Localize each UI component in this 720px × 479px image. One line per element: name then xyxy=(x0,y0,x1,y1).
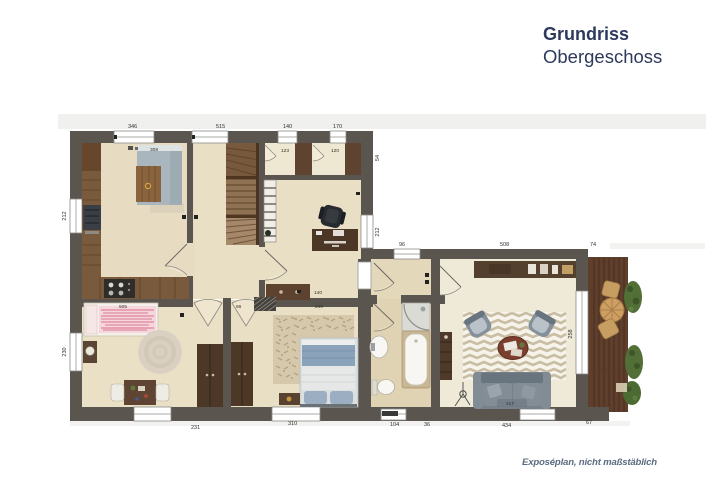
svg-text:308: 308 xyxy=(150,147,158,153)
svg-text:434: 434 xyxy=(502,423,511,429)
svg-text:212: 212 xyxy=(62,211,68,220)
svg-text:240: 240 xyxy=(315,304,323,310)
svg-text:346: 346 xyxy=(128,124,137,130)
svg-text:508: 508 xyxy=(500,242,509,248)
svg-text:258: 258 xyxy=(568,329,574,338)
svg-text:67: 67 xyxy=(586,420,592,426)
svg-text:66: 66 xyxy=(236,304,242,310)
svg-text:74: 74 xyxy=(590,242,596,248)
svg-text:505: 505 xyxy=(119,304,127,310)
svg-text:96: 96 xyxy=(399,242,405,248)
svg-text:140: 140 xyxy=(314,290,322,296)
svg-text:231: 231 xyxy=(191,425,200,431)
svg-text:54: 54 xyxy=(375,155,381,161)
svg-text:515: 515 xyxy=(216,124,225,130)
svg-text:170: 170 xyxy=(333,124,342,130)
svg-text:417: 417 xyxy=(506,401,514,407)
svg-text:230: 230 xyxy=(62,347,68,356)
svg-text:212: 212 xyxy=(375,227,381,236)
svg-text:310: 310 xyxy=(288,421,297,427)
svg-text:140: 140 xyxy=(283,124,292,130)
svg-text:36: 36 xyxy=(424,422,430,428)
svg-text:120: 120 xyxy=(331,148,339,154)
svg-text:123: 123 xyxy=(281,148,289,154)
svg-text:104: 104 xyxy=(390,422,399,428)
